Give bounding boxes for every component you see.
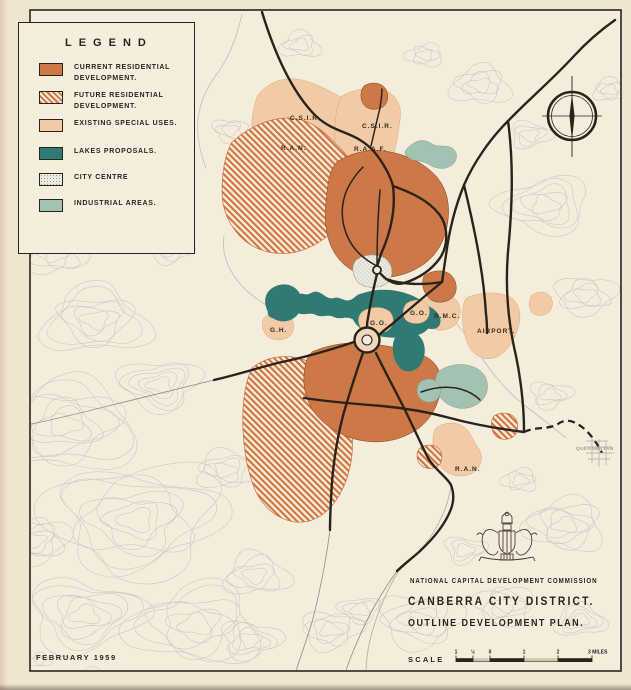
map-title: CANBERRA CITY DISTRICT. (408, 594, 590, 608)
map-label: QUEANBEYAN (576, 446, 614, 452)
map-label: R.M.C. (434, 313, 460, 320)
agency-name: NATIONAL CAPITAL DEVELOPMENT COMMISSION (410, 578, 595, 585)
scale-tick: 2 (557, 650, 560, 656)
scale-tick: 1 (523, 650, 526, 656)
future-residential-swatch (39, 91, 63, 104)
map-label: R.A.N. (455, 466, 481, 473)
legend-item-current-residential: CURRENT RESIDENTIAL DEVELOPMENT. (39, 63, 194, 77)
map-label: C.S.I.R. (290, 115, 321, 122)
title-block: NATIONAL CAPITAL DEVELOPMENT COMMISSION … (408, 578, 620, 629)
current-residential-swatch (39, 63, 63, 76)
map-label: R.A.N. (281, 145, 307, 152)
legend-panel: LEGEND CURRENT RESIDENTIAL DEVELOPMENT. … (18, 22, 195, 254)
date-stamp: FEBRUARY 1959 (36, 653, 117, 662)
map-sheet: C.S.I.R.C.S.I.R.R.A.N.R.A.A.F.G.H.G.O.G.… (0, 0, 631, 690)
industrial-areas-swatch (39, 199, 63, 212)
map-label: G.O. (370, 320, 388, 327)
scale-tick: 3 MILES (588, 650, 608, 656)
existing-special-uses-swatch (39, 119, 63, 132)
scale-label: SCALE (408, 655, 444, 664)
map-label: G.H. (270, 327, 287, 334)
lakes-proposals-swatch (39, 147, 63, 160)
legend-item-city-centre: CITY CENTRE (39, 173, 194, 187)
map-label: G.O. (410, 310, 428, 317)
map-label: R.A.A.F. (354, 146, 387, 153)
scale-tick: ½ (471, 649, 475, 656)
map-label: C.S.I.R. (362, 123, 393, 130)
scale-tick: 0 (489, 650, 492, 656)
legend-title: LEGEND (65, 37, 194, 49)
legend-item-lakes-proposals: LAKES PROPOSALS. (39, 147, 194, 161)
map-subtitle: OUTLINE DEVELOPMENT PLAN. (408, 618, 599, 629)
legend-item-existing-special-uses: EXISTING SPECIAL USES. (39, 119, 194, 133)
legend-item-industrial-areas: INDUSTRIAL AREAS. (39, 199, 194, 213)
city-centre-swatch (39, 173, 63, 186)
map-label: AIRPORT. (477, 328, 515, 335)
legend-item-future-residential: FUTURE RESIDENTIAL DEVELOPMENT. (39, 91, 194, 105)
scale-tick: 1 (455, 650, 458, 656)
